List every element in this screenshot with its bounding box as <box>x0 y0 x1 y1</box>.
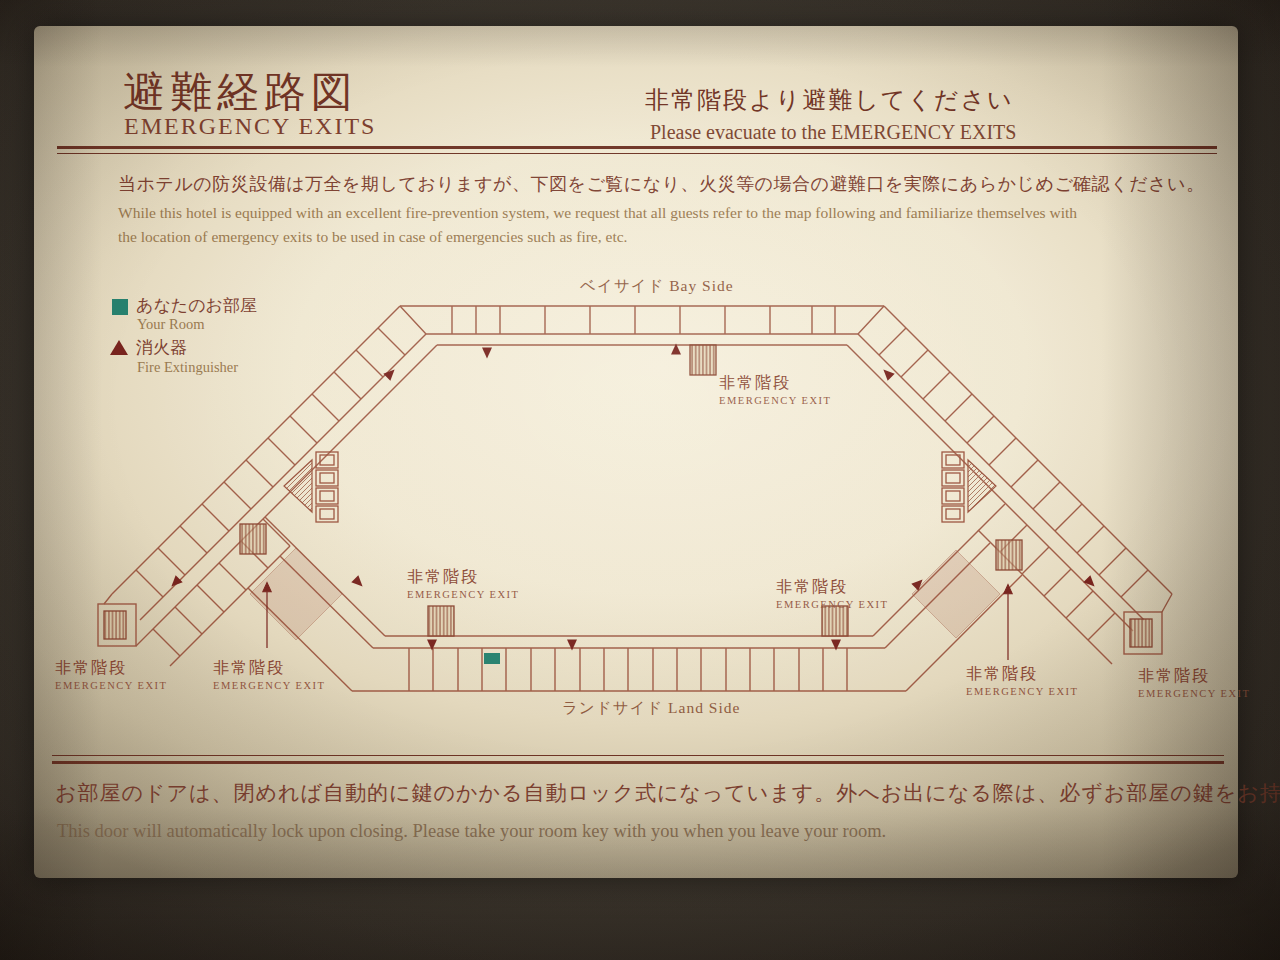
exit-label-en: EMERGENCY EXIT <box>1138 688 1250 699</box>
exit-label-en: EMERGENCY EXIT <box>776 599 888 610</box>
exit-label-en: EMERGENCY EXIT <box>407 589 519 600</box>
exit-label-jp: 非常階段 <box>719 373 831 394</box>
exit-label-en: EMERGENCY EXIT <box>719 395 831 406</box>
stairs-icon-west-junction <box>240 524 266 554</box>
photo-of-emergency-exit-sign: { "sign": { "header": { "title_jp": "避難経… <box>0 0 1280 960</box>
your-room-marker <box>484 653 500 664</box>
exit-label-east-wing-tip: 非常階段 EMERGENCY EXIT <box>1138 666 1250 699</box>
exit-label-jp: 非常階段 <box>1138 666 1250 687</box>
stairs-icon-land-left <box>428 606 454 636</box>
exit-label-land-left: 非常階段 EMERGENCY EXIT <box>407 567 519 600</box>
exit-label-east-wing-junction: 非常階段 EMERGENCY EXIT <box>966 664 1078 697</box>
stairs-icon-east-tip <box>1130 619 1152 647</box>
elevator-icons <box>316 452 964 522</box>
exit-label-en: EMERGENCY EXIT <box>966 686 1078 697</box>
exit-label-land-right: 非常階段 EMERGENCY EXIT <box>776 577 888 610</box>
corridor-outlines <box>98 306 1172 691</box>
floor-plan <box>0 0 1280 960</box>
stairs-icon-land-right <box>822 606 848 636</box>
exit-label-west-wing-junction: 非常階段 EMERGENCY EXIT <box>213 658 325 691</box>
stairs-icon-bay <box>690 345 716 375</box>
exit-label-jp: 非常階段 <box>966 664 1078 685</box>
stairs-icon-east-junction <box>996 540 1022 570</box>
exit-label-jp: 非常階段 <box>55 658 167 679</box>
stairs-icon-west-tip <box>104 611 126 639</box>
exit-label-jp: 非常階段 <box>213 658 325 679</box>
hatched-triangle-areas <box>284 460 996 512</box>
exit-label-jp: 非常階段 <box>776 577 888 598</box>
exit-label-en: EMERGENCY EXIT <box>213 680 325 691</box>
exit-label-bay-center: 非常階段 EMERGENCY EXIT <box>719 373 831 406</box>
exit-label-en: EMERGENCY EXIT <box>55 680 167 691</box>
exit-label-west-wing-tip: 非常階段 EMERGENCY EXIT <box>55 658 167 691</box>
exit-label-jp: 非常階段 <box>407 567 519 588</box>
